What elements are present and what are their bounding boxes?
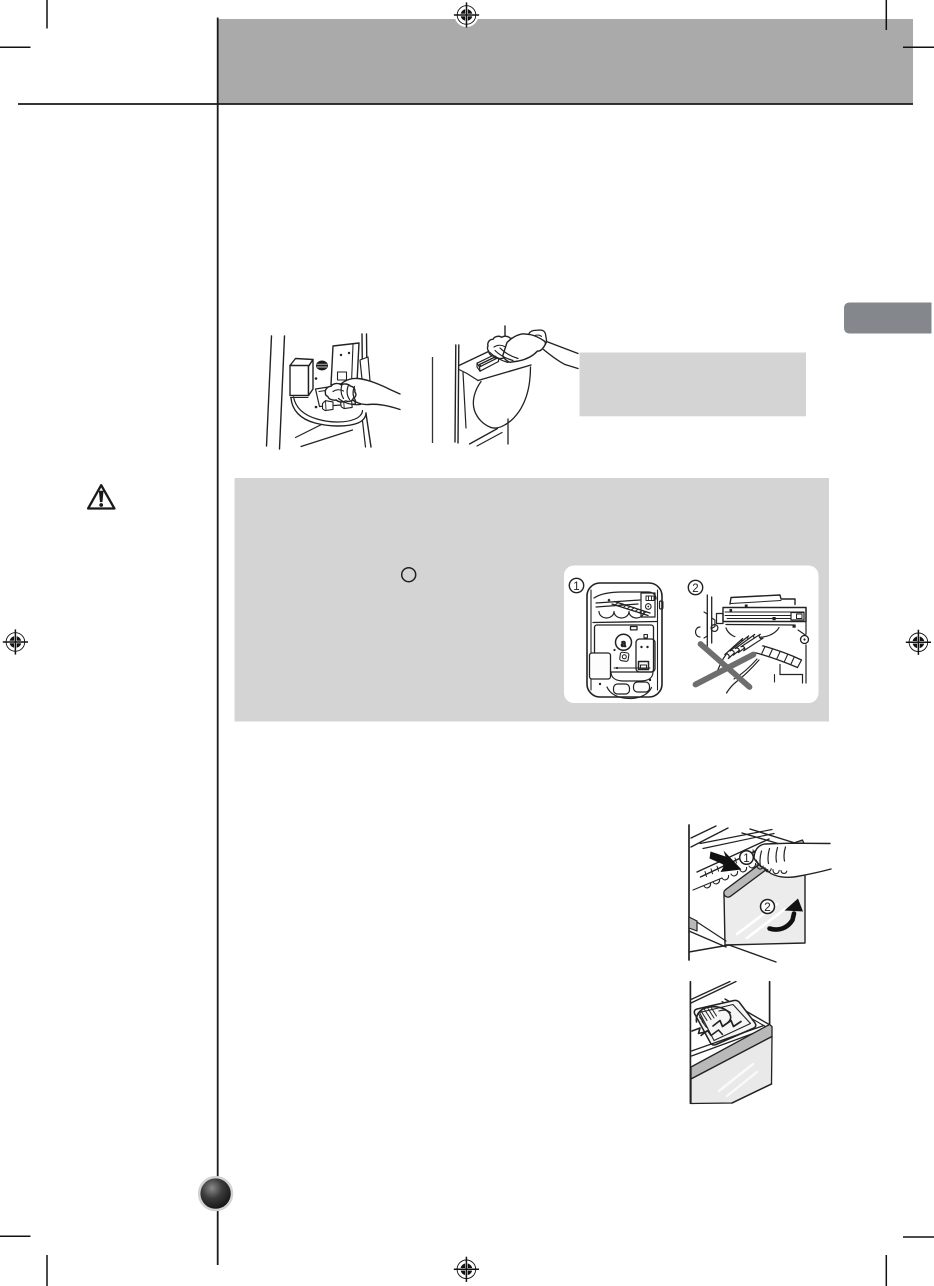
svg-text:a: a — [621, 638, 626, 650]
svg-text:2: 2 — [692, 583, 698, 595]
svg-text:1: 1 — [743, 853, 749, 865]
svg-text:1: 1 — [573, 581, 579, 593]
svg-text:2: 2 — [764, 900, 771, 914]
